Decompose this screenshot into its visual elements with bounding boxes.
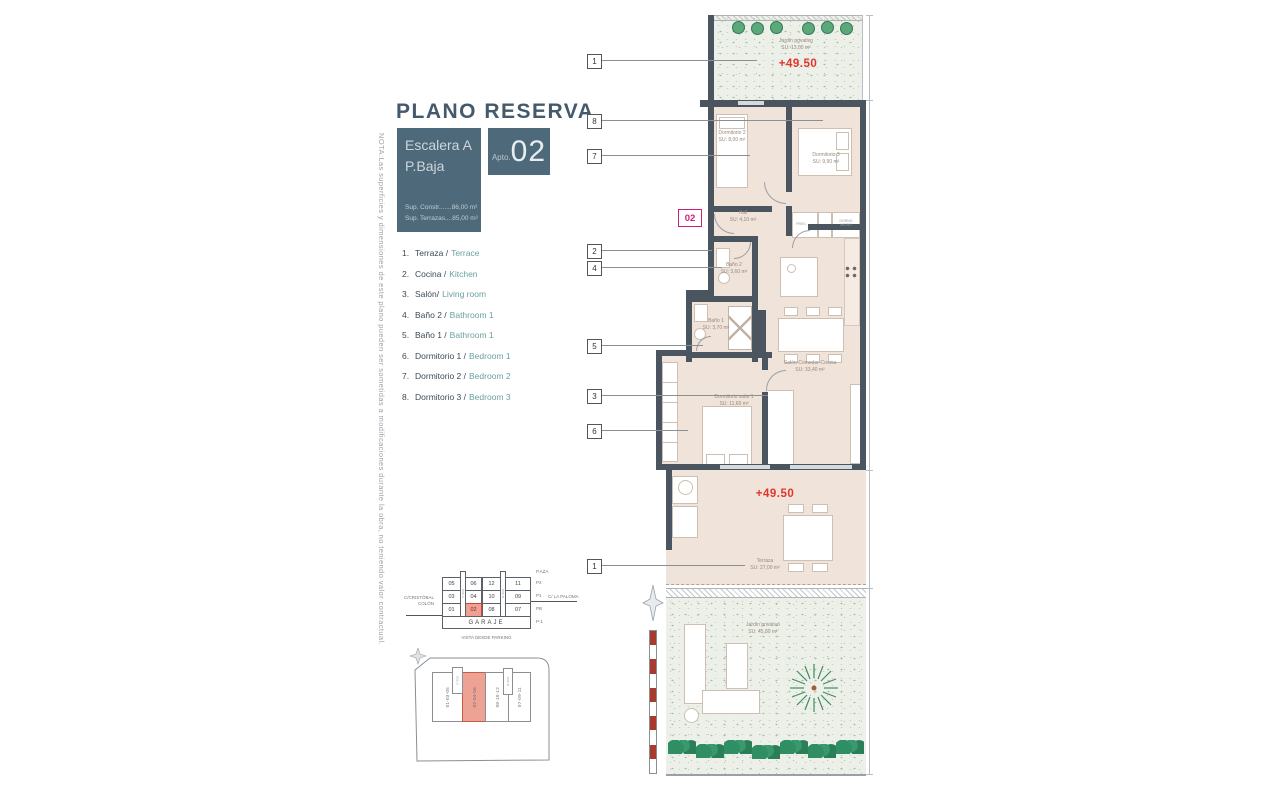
wall <box>860 107 866 470</box>
stack-cell: 03 <box>442 590 461 604</box>
apto-number: 02 <box>511 135 546 169</box>
leader-line <box>600 250 712 251</box>
plano-reserva-page: NOTA:Las superficies y dimensiones de es… <box>0 0 1280 800</box>
pillow <box>719 117 745 129</box>
dimension-line <box>869 15 870 775</box>
legend-item: 7.Dormitorio 2 /Bedroom 2 <box>402 371 511 381</box>
street-label-right: C/ LA PALOMA <box>548 594 579 600</box>
room-label-hall: Hall SU: 4,10 m² <box>730 210 757 225</box>
sofa <box>766 390 794 468</box>
stack-cell: 09 <box>505 590 531 604</box>
room-label-dormitorio-3: Dormitorio 3 SU: 9,90 m² <box>812 152 839 167</box>
bush-icon <box>668 740 696 754</box>
shower <box>728 306 752 350</box>
street-line-left <box>406 615 442 616</box>
wardrobe <box>662 362 678 462</box>
room-label-bano-2: Baño 2 SU: 3,60 m² <box>721 262 748 277</box>
north-star-icon <box>642 585 664 621</box>
side-table <box>684 708 699 723</box>
legend-item: 3.Salón/Living room <box>402 289 511 299</box>
elevation-lower: +49.50 <box>756 488 795 500</box>
tree-icon <box>770 21 783 34</box>
wall <box>762 392 768 464</box>
leader-line <box>600 155 750 156</box>
leader-line <box>600 565 745 566</box>
garden-edge-line <box>862 15 863 103</box>
room-label-terraza: Terraza SU: 27,00 m² <box>750 558 779 573</box>
wall <box>666 470 672 550</box>
tree-icon <box>840 22 853 35</box>
stack-caption: VISTA DESDE PARKING <box>442 635 531 641</box>
callout-5: 5 <box>587 339 602 354</box>
tree-icon <box>751 22 764 35</box>
legend-item: 2.Cocina /Kitchen <box>402 269 511 279</box>
dimension-tick <box>866 470 873 471</box>
stack-cell: 05 <box>442 577 461 591</box>
stack-cell: 10 <box>482 590 501 604</box>
pillow <box>836 132 849 150</box>
kitchen-island <box>780 257 818 297</box>
leader-line <box>600 267 722 268</box>
scale-segment <box>650 745 656 759</box>
chair <box>828 307 842 316</box>
stair-shaft-a: ESC.A <box>460 571 466 617</box>
kitchen-counter <box>844 238 860 326</box>
tree-icon <box>802 22 815 35</box>
room-label-jardin-top: Jardín privativo SU: 13,00 m² <box>779 38 813 53</box>
appliance-label-horno: HORNO MICRO <box>835 219 857 227</box>
scale-segment <box>650 759 656 773</box>
water-heater <box>678 480 693 495</box>
chair <box>812 563 828 572</box>
stack-cell: 08 <box>482 603 501 617</box>
surface-info: Sup. Constr.......86,00 m² Sup. Terrazas… <box>405 203 478 224</box>
stair-block-b: ESC.B <box>503 668 513 695</box>
room-label-salon: Salón-Comedor-Cocina SU: 33,40 m² <box>784 360 836 375</box>
chair <box>806 307 820 316</box>
page-title: PLANO RESERVA <box>396 100 594 124</box>
site-plan: 01-03-05 02-04-06 08-10-12 07-09-11 ESC.… <box>405 648 583 776</box>
tree-icon <box>788 662 840 714</box>
sliding-door <box>720 465 770 469</box>
callout-3: 3 <box>587 389 602 404</box>
building-stack-diagram: 05 06 12 11 03 04 10 09 01 02 08 07 ESC.… <box>400 565 590 647</box>
floor-label: P.AZA <box>536 569 548 574</box>
leader-line <box>600 430 688 431</box>
garden-top-band <box>714 15 862 21</box>
bush-icon <box>696 744 724 758</box>
leader-line <box>600 120 823 121</box>
scale-segment <box>650 716 656 730</box>
chair <box>784 307 798 316</box>
bush-icon <box>780 740 808 754</box>
stack-cell: 12 <box>482 577 501 591</box>
escalera-label: Escalera A <box>405 135 481 156</box>
garden-sofa <box>702 690 760 714</box>
scale-segment <box>650 688 656 702</box>
scale-segment <box>650 674 656 688</box>
chair <box>788 504 804 513</box>
legend-item: 5.Baño 1 /Bathroom 1 <box>402 330 511 340</box>
compass-star-icon <box>410 648 426 664</box>
scale-segment <box>650 631 656 645</box>
room-label-dormitorio-2: Dormitorio 2 SU: 8,00 m² <box>718 130 745 145</box>
room-label-jardin-bottom: Jardín privativo SU: 45,80 m² <box>746 622 780 637</box>
callout-7: 7 <box>587 149 602 164</box>
bush-icon <box>752 745 780 759</box>
dimension-tick <box>866 100 873 101</box>
stack-cell: 01 <box>442 603 461 617</box>
legend-item: 8.Dormitorio 3 /Bedroom 3 <box>402 392 511 402</box>
chair <box>788 563 804 572</box>
garden-table <box>726 643 748 689</box>
floor-label: P2 <box>536 580 542 585</box>
callout-4: 4 <box>587 261 602 276</box>
legend-item: 1.Terraza /Terrace <box>402 248 511 258</box>
callout-8: 8 <box>587 114 602 129</box>
stair-shaft-b: ESC.B <box>500 571 506 617</box>
street-line-right <box>531 601 577 602</box>
scale-segment <box>650 645 656 659</box>
floor-plan: Jardín privativo SU: 13,00 m² +49.50 02 … <box>650 10 876 782</box>
room-label-suite: Dormitorio suite 1 SU: 11,60 m² <box>714 394 753 409</box>
scale-segment <box>650 659 656 673</box>
bush-icon <box>836 740 864 754</box>
floor-label: PB <box>536 606 542 611</box>
wall <box>692 296 758 302</box>
stack-cell: 07 <box>505 603 531 617</box>
planta-label: P.Baja <box>405 156 481 177</box>
wall <box>708 15 714 103</box>
island-sink <box>787 264 796 273</box>
wall <box>758 310 766 358</box>
leader-line <box>600 345 703 346</box>
apartment-box: Apto. 02 <box>488 128 550 175</box>
retaining-wall-hatch <box>666 588 866 598</box>
wall <box>786 206 792 236</box>
tree-icon <box>821 21 834 34</box>
legend-item: 4.Baño 2 /Bathroom 1 <box>402 310 511 320</box>
washer-box <box>672 506 698 538</box>
hob-icon <box>843 264 859 280</box>
stair-block-a: ESC.A <box>452 667 463 694</box>
sup-constr: Sup. Constr.......86,00 m² <box>405 203 478 213</box>
callout-1-top: 1 <box>587 54 602 69</box>
wall <box>762 358 768 370</box>
street-label-left: C/CRISTÓBAL COLÓN <box>400 595 434 607</box>
elevation-upper: +49.50 <box>779 58 818 70</box>
unit-badge: 02 <box>678 209 702 227</box>
sliding-door <box>738 101 764 105</box>
bush-icon <box>724 740 752 754</box>
dining-table <box>778 318 844 352</box>
stack-cell: 04 <box>465 590 482 604</box>
terrace-table <box>783 515 833 561</box>
tree-icon <box>732 21 745 34</box>
stack-cell: 11 <box>505 577 531 591</box>
callout-1-bottom: 1 <box>587 559 602 574</box>
sliding-door <box>790 465 852 469</box>
appliance-label-freg: FREG. <box>796 222 807 226</box>
leader-line <box>600 60 757 61</box>
room-legend: 1.Terraza /Terrace 2.Cocina /Kitchen 3.S… <box>402 248 511 412</box>
callout-6: 6 <box>587 424 602 439</box>
floor-label: P1 <box>536 593 542 598</box>
apto-label: Apto. <box>492 153 511 162</box>
dimension-tick <box>866 588 873 589</box>
scale-segment <box>650 730 656 744</box>
dimension-tick <box>866 774 873 775</box>
scale-segment <box>650 702 656 716</box>
floor-label: P-1 <box>536 619 543 624</box>
stack-cell-highlight: 02 <box>465 603 482 617</box>
bush-icon <box>808 744 836 758</box>
chair <box>812 504 828 513</box>
room-label-bano-1: Baño 1 SU: 3,70 m² <box>703 318 730 333</box>
dimension-tick <box>866 15 873 16</box>
site-strip-highlight: 02-04-06 <box>462 672 486 722</box>
legend-item: 6.Dormitorio 1 /Bedroom 1 <box>402 351 511 361</box>
stair-floor-box: Escalera A P.Baja Sup. Constr.......86,0… <box>397 128 481 232</box>
sup-terrazas: Sup. Terrazas....85,00 m² <box>405 214 478 224</box>
scale-bar <box>649 630 657 774</box>
wall <box>700 100 866 107</box>
garage-cell: GARAJE <box>442 616 531 629</box>
stack-cell: 06 <box>465 577 482 591</box>
leader-line <box>600 395 768 396</box>
callout-2: 2 <box>587 244 602 259</box>
disclaimer-note: NOTA:Las superficies y dimensiones de es… <box>377 133 386 678</box>
wall <box>708 107 714 290</box>
wall <box>656 350 662 470</box>
